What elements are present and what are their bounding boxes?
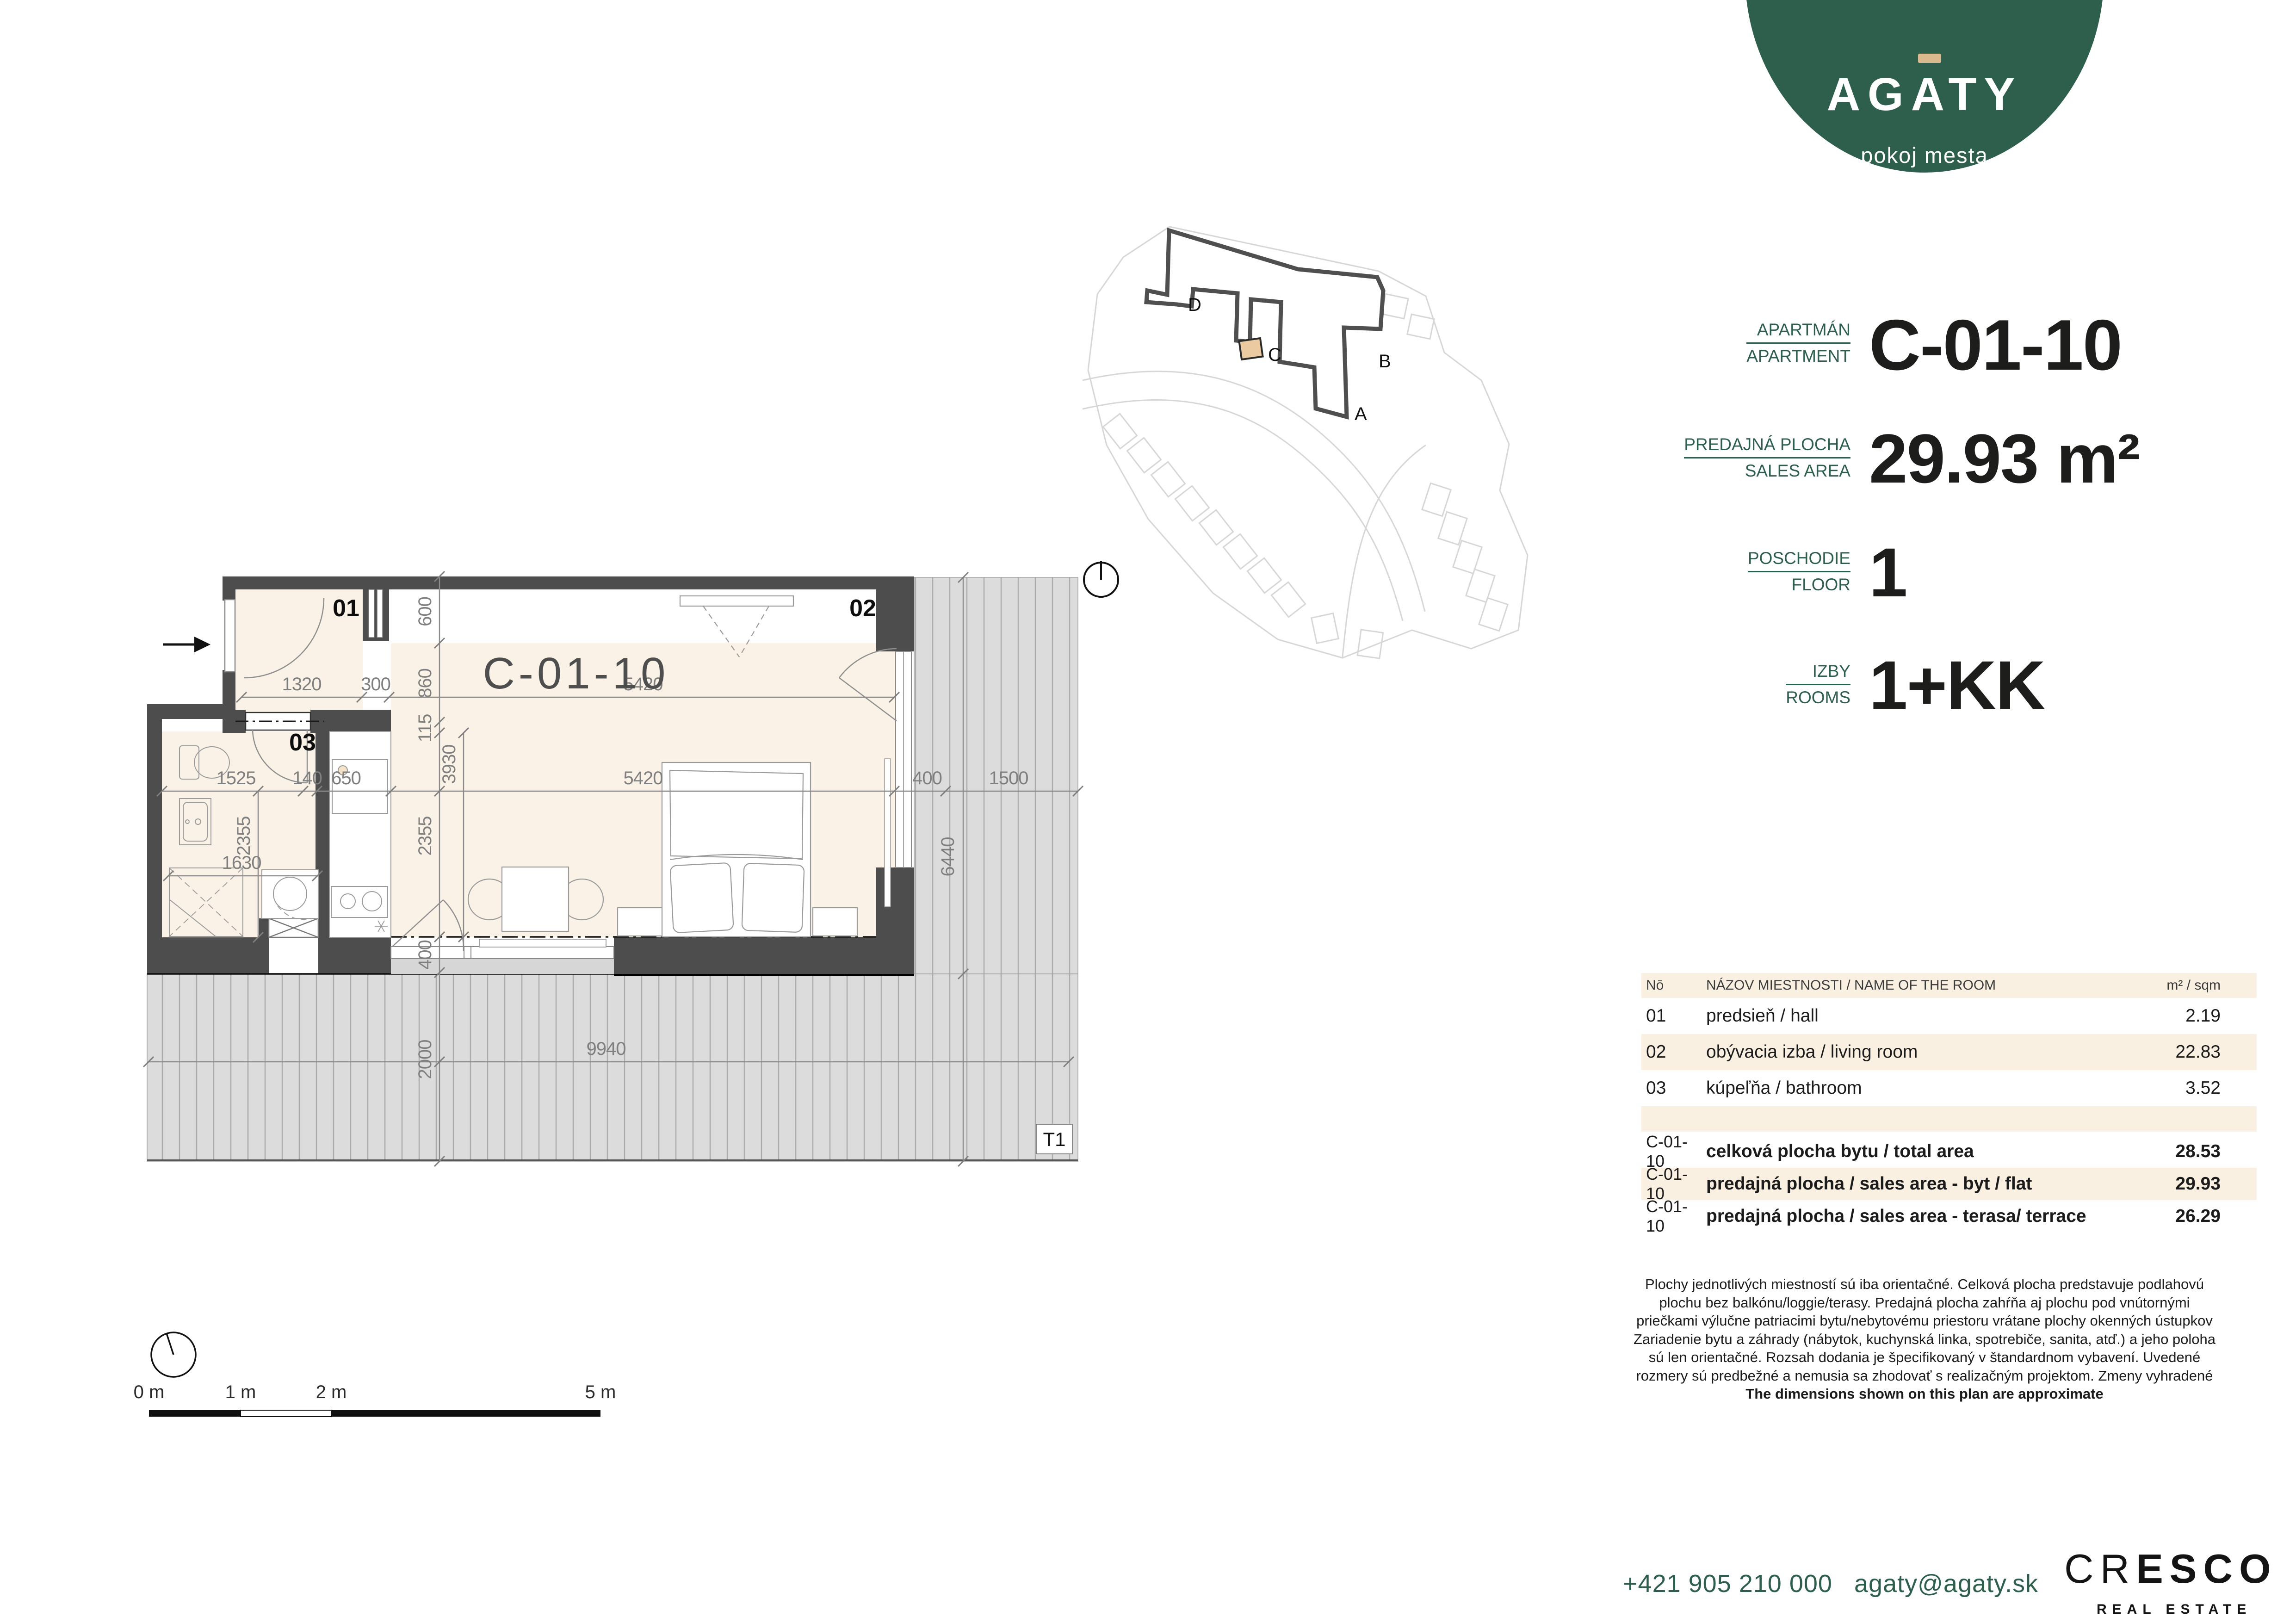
contact-email: agaty@agaty.sk bbox=[1854, 1569, 2038, 1598]
info-sales-label-en: SALES AREA bbox=[1684, 460, 1850, 482]
site-label-b: B bbox=[1379, 351, 1391, 372]
table-row: 01 predsieň / hall 2.19 bbox=[1641, 998, 2257, 1034]
col-area: m² / sqm bbox=[2166, 978, 2221, 993]
info-rooms-label-sk: IZBY bbox=[1786, 661, 1850, 682]
site-label-a: A bbox=[1355, 404, 1367, 424]
room-name: obývacia izba / living room bbox=[1706, 1042, 2175, 1062]
room-label-03: 03 bbox=[289, 729, 316, 756]
dim-860: 860 bbox=[415, 669, 435, 698]
info-sales-label-sk: PREDAJNÁ PLOCHA bbox=[1684, 434, 1850, 455]
dim-3930: 3930 bbox=[439, 745, 459, 784]
dim-600: 600 bbox=[415, 597, 435, 626]
room-name: kúpeľňa / bathroom bbox=[1706, 1078, 2185, 1098]
table-total-row: C-01-10 predajná plocha / sales area - t… bbox=[1641, 1200, 2257, 1233]
logo-name: AGATY bbox=[1827, 68, 2023, 120]
total-name: celková plocha bytu / total area bbox=[1706, 1141, 2175, 1162]
table-total-row: C-01-10 celková plocha bytu / total area… bbox=[1641, 1135, 2257, 1168]
info-apartment-value: C-01-10 bbox=[1869, 309, 2122, 381]
scale-2m: 2 m bbox=[316, 1382, 347, 1402]
table-row: 03 kúpeľňa / bathroom 3.52 bbox=[1641, 1070, 2257, 1106]
shaft-slot bbox=[369, 589, 374, 638]
dim-1500: 1500 bbox=[989, 768, 1028, 788]
scale-1m: 1 m bbox=[225, 1382, 256, 1402]
info-apartment-label-en: APARTMENT bbox=[1746, 346, 1850, 367]
dim-2000: 2000 bbox=[415, 1040, 435, 1079]
dim-6440: 6440 bbox=[938, 837, 958, 877]
table-empty-row bbox=[1641, 1106, 2257, 1132]
table-row: 02 obývacia izba / living room 22.83 bbox=[1641, 1034, 2257, 1070]
room-no: 02 bbox=[1646, 1042, 1706, 1062]
site-label-d: D bbox=[1188, 295, 1201, 315]
terrace-tag: T1 bbox=[1036, 1124, 1072, 1154]
disclaimer-line-en: The dimensions shown on this plan are ap… bbox=[1624, 1385, 2225, 1403]
cresco-bold: ESCO bbox=[2136, 1546, 2277, 1592]
divider bbox=[1786, 684, 1850, 685]
dim-300: 300 bbox=[361, 674, 390, 694]
plan-unit-label: C-01-10 bbox=[483, 649, 669, 698]
table-gap bbox=[1641, 1132, 2257, 1135]
divider bbox=[1748, 571, 1850, 572]
divider bbox=[1746, 342, 1850, 344]
info-rooms: IZBY ROOMS bbox=[1527, 661, 1850, 709]
scale-5m: 5 m bbox=[585, 1382, 616, 1402]
disclaimer-line: rozmery sú predbežné a nemusia sa zhodov… bbox=[1624, 1367, 2225, 1385]
total-name: predajná plocha / sales area - terasa/ t… bbox=[1706, 1206, 2175, 1227]
divider bbox=[1684, 457, 1850, 458]
entry-arrow-icon bbox=[163, 637, 210, 652]
duct-shaft bbox=[269, 918, 318, 937]
room-name: predsieň / hall bbox=[1706, 1006, 2185, 1026]
table-header: Nō NÁZOV MIESTNOSTI / NAME OF THE ROOM m… bbox=[1641, 973, 2257, 998]
dim-9940: 9940 bbox=[587, 1039, 626, 1059]
total-name: predajná plocha / sales area - byt / fla… bbox=[1706, 1174, 2175, 1194]
brand-logo: AGATY pokoj mesta bbox=[1745, 0, 2104, 173]
scale-0m: 0 m bbox=[134, 1382, 165, 1402]
info-floor: POSCHODIE FLOOR bbox=[1527, 548, 1850, 596]
disclaimer-line: sú len orientačné. Rozsah dodania je špe… bbox=[1624, 1348, 2225, 1367]
kitchen bbox=[329, 731, 391, 937]
room-area: 2.19 bbox=[2185, 1006, 2221, 1026]
unit-marker bbox=[1239, 338, 1262, 359]
dim-2355-bath: 2355 bbox=[234, 817, 254, 856]
logo-tagline: pokoj mesta bbox=[1861, 143, 1988, 167]
disclaimer-line: Plochy jednotlivých miestností sú iba or… bbox=[1624, 1275, 2225, 1294]
site-parcels bbox=[1103, 294, 1508, 658]
dim-140: 140 bbox=[292, 768, 322, 788]
room-label-01: 01 bbox=[333, 595, 359, 622]
cresco-subtitle: REAL ESTATE bbox=[2097, 1602, 2252, 1617]
disclaimer-line: plochu bez balkónu/loggie/terasy. Predaj… bbox=[1624, 1294, 2225, 1312]
room-no: 03 bbox=[1646, 1078, 1706, 1098]
info-floor-label-en: FLOOR bbox=[1748, 574, 1850, 595]
info-sales-value: 29.93 m² bbox=[1869, 424, 2139, 493]
info-rooms-value: 1+KK bbox=[1869, 650, 2045, 720]
disclaimer: Plochy jednotlivých miestností sú iba or… bbox=[1624, 1275, 2225, 1403]
disclaimer-line: Zariadenie bytu a záhrady (nábytok, kuch… bbox=[1624, 1330, 2225, 1349]
info-apartment: APARTMÁN APARTMENT bbox=[1527, 319, 1850, 367]
info-floor-value: 1 bbox=[1869, 538, 1906, 607]
logo-macron-icon bbox=[1918, 54, 1941, 63]
nightstand bbox=[813, 908, 857, 936]
dim-2355-living: 2355 bbox=[415, 817, 435, 856]
dim-400-right: 400 bbox=[912, 768, 942, 788]
disclaimer-line: priečkami výlučne patriacimi bytu/nebyto… bbox=[1624, 1312, 2225, 1330]
shaft-slot bbox=[377, 589, 383, 638]
info-sales-area: PREDAJNÁ PLOCHA SALES AREA bbox=[1527, 434, 1850, 482]
contact-phone: +421 905 210 000 bbox=[1623, 1569, 1832, 1598]
col-no: Nō bbox=[1646, 978, 1706, 993]
terrace-label: T1 bbox=[1043, 1128, 1065, 1150]
info-apartment-label-sk: APARTMÁN bbox=[1746, 319, 1850, 341]
floorplan-sheet: AGATY pokoj mesta bbox=[0, 0, 2296, 1623]
total-area: 29.93 bbox=[2175, 1174, 2221, 1194]
total-no: C-01-10 bbox=[1646, 1197, 1706, 1236]
dim-650: 650 bbox=[331, 768, 361, 788]
dim-115: 115 bbox=[415, 714, 435, 743]
room-table: Nō NÁZOV MIESTNOSTI / NAME OF THE ROOM m… bbox=[1641, 973, 2257, 1233]
room-label-02: 02 bbox=[849, 595, 876, 622]
room-area: 3.52 bbox=[2185, 1078, 2221, 1098]
cresco-logo: CRESCO bbox=[2064, 1545, 2277, 1592]
nightstand bbox=[618, 908, 662, 936]
scale-bar: 0 m 1 m 2 m 5 m bbox=[134, 1332, 616, 1417]
site-building-outline bbox=[1146, 230, 1383, 417]
cresco-thin: CR bbox=[2064, 1546, 2136, 1592]
compass-icon bbox=[151, 1332, 196, 1377]
dim-1630: 1630 bbox=[222, 853, 261, 873]
dim-1320: 1320 bbox=[282, 674, 322, 694]
total-area: 28.53 bbox=[2175, 1141, 2221, 1162]
info-rooms-label-en: ROOMS bbox=[1786, 687, 1850, 708]
room-no: 01 bbox=[1646, 1006, 1706, 1026]
site-plan: D C B A bbox=[1083, 227, 1528, 658]
dim-5420-mid: 5420 bbox=[624, 768, 663, 788]
washing-machine-icon bbox=[262, 870, 318, 919]
table-total-row: C-01-10 predajná plocha / sales area - b… bbox=[1641, 1168, 2257, 1200]
room-area: 22.83 bbox=[2175, 1042, 2221, 1062]
site-label-c: C bbox=[1268, 345, 1281, 365]
col-name: NÁZOV MIESTNOSTI / NAME OF THE ROOM bbox=[1706, 978, 2166, 993]
bathroom-sliding-door bbox=[235, 712, 324, 730]
total-area: 26.29 bbox=[2175, 1206, 2221, 1227]
info-floor-label-sk: POSCHODIE bbox=[1748, 548, 1850, 569]
north-indicator-icon bbox=[1084, 561, 1118, 597]
bed bbox=[662, 762, 811, 937]
dim-400-bottom: 400 bbox=[415, 940, 435, 970]
dim-1525: 1525 bbox=[217, 768, 256, 788]
floor-plan: T1 bbox=[143, 561, 1118, 1166]
